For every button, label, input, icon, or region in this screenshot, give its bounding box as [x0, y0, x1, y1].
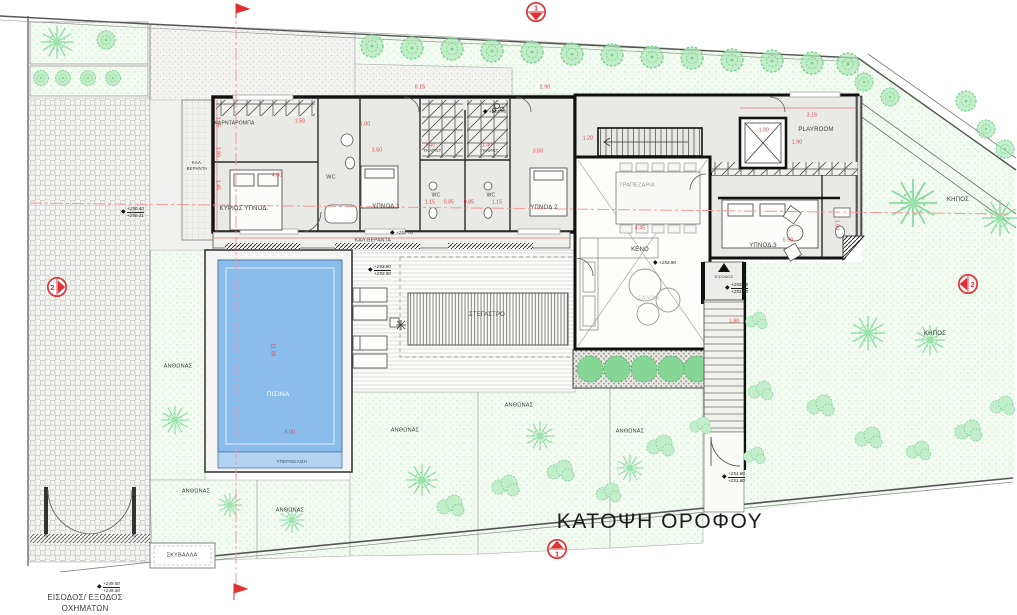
- dim-label: 1.15: [425, 201, 436, 206]
- drawing-title: ΚΑΤΟΨΗ ΟΡΟΦΟΥ: [557, 510, 763, 534]
- label-flowerbed-1: ΑΝΘΩΝΑΣ: [164, 364, 192, 370]
- dim-label: 4.00: [272, 174, 283, 179]
- label-master-bedroom: ΚΥΡΙΩΣ ΥΠΝΟΔ.: [220, 206, 269, 212]
- elevation-value: +257.70: [396, 230, 413, 236]
- dim-label: 4.45: [635, 227, 646, 232]
- wardrobe-hatch: [216, 100, 315, 116]
- label-trapezaria: ΤΡΑΠΕΖΑΡΙΑ: [619, 183, 655, 189]
- dim-label: 1.45: [215, 180, 220, 191]
- dim-label: 2.90: [540, 86, 551, 91]
- elevator: [740, 118, 786, 168]
- svg-text:1: 1: [555, 549, 559, 558]
- dim-label: 1.15: [492, 201, 503, 206]
- label-bedroom-3: ΥΠΝΟΔ.3: [749, 243, 777, 249]
- label-bedroom-2: ΥΠΝΟΔ.2: [530, 205, 558, 211]
- section-marker-top: 1: [525, 1, 547, 23]
- label-garnt-1: ΓΚΑΡΝΤ.: [424, 149, 443, 153]
- dim-label: 1.80: [759, 129, 770, 134]
- dim-label: 0.85: [464, 201, 475, 206]
- dim-label: 1.45: [215, 117, 220, 128]
- label-wc-1: WC: [432, 194, 441, 199]
- dim-label: 3.50: [533, 150, 544, 155]
- label-vehicle-entry-2: ΟΧΗΜΑΤΩΝ: [62, 605, 109, 613]
- dim-label: 6.00: [285, 431, 296, 436]
- dim-label: 3.50: [372, 149, 383, 154]
- label-pool: ΠΙΣΙΝΑ: [267, 392, 290, 399]
- dim-label: 1.50: [295, 120, 306, 125]
- elevation-value: +249.30: [103, 588, 120, 594]
- label-canopy: ΣΤΕΓΑΣΤΡΟ: [469, 312, 505, 318]
- label-saloni: ΣΑΛΟΝΙ: [638, 296, 660, 302]
- elevation-marker: ◆+250.40+250.31: [121, 206, 144, 218]
- elevation-value: +253.50: [374, 271, 391, 277]
- dim-label: 1.80: [729, 320, 740, 325]
- label-flowerbed-6: ΑΝΘΩΝΑΣ: [616, 429, 644, 435]
- dim-label: 1.80: [215, 147, 220, 158]
- elevation-marker: ◆+251.80+251.80: [722, 471, 745, 483]
- section-marker-left: 2: [46, 276, 68, 298]
- elevation-flag-icon: ◆: [725, 285, 730, 291]
- label-garnt-2: ΓΚΑΡΝΤ.: [481, 149, 500, 153]
- dim-label: 1.20: [583, 137, 594, 142]
- svg-text:2: 2: [50, 283, 54, 292]
- elevation-marker: ◆+257.75: [483, 109, 506, 115]
- svg-text:1: 1: [534, 4, 538, 13]
- label-playroom: PLAYROOM: [798, 127, 833, 133]
- dim-label: 11.00: [270, 343, 275, 356]
- elevation-flag-icon: ◆: [121, 209, 126, 215]
- label-bedroom-1: ΥΠΝΟΔ.1: [372, 204, 400, 210]
- elevation-marker: ◆+253.90+253.50: [368, 264, 391, 276]
- label-kal-veranta-left-1: ΚΑΛ.: [192, 161, 203, 165]
- elevation-flag-icon: ◆: [390, 230, 395, 236]
- elevation-flag-icon: ◆: [483, 109, 488, 115]
- dim-label: 1.50: [834, 220, 839, 231]
- planter-box: [573, 344, 710, 388]
- label-kal-veranta-left-2: ΒΕΡΑΝΤΑ: [187, 167, 208, 171]
- label-kal-veranta-bottom: ΚΑΛ.ΒΕΡΑΝΤΑ: [355, 239, 391, 244]
- label-garden-2: ΚΗΠΟΣ: [924, 331, 946, 337]
- elevation-value: +250.31: [127, 213, 144, 219]
- dim-label: 5.50: [783, 239, 794, 244]
- dim-label: 1.00: [360, 123, 371, 128]
- elevation-flag-icon: ◆: [653, 260, 658, 266]
- floor-plan-page: 1 1 2 2 ΚΑΤΟΨΗ ΟΡΟΦΟΥ ΓΚΑΡΝΤΑΡΟΜΠΑΚΥΡΙΩΣ…: [0, 0, 1017, 615]
- elevation-flag-icon: ◆: [97, 584, 102, 590]
- svg-text:2: 2: [971, 280, 975, 289]
- dim-label: 1.90: [792, 141, 803, 146]
- label-garden-1: ΚΗΠΟΣ: [947, 197, 969, 203]
- label-wc-2: WC: [487, 194, 496, 199]
- label-flowerbed-5: ΑΝΘΩΝΑΣ: [505, 403, 533, 409]
- label-flowerbed-2: ΑΝΘΩΝΑΣ: [182, 489, 210, 495]
- site-plan-drawing: [0, 0, 1017, 615]
- section-marker-right: 2: [957, 273, 979, 295]
- pool-water: [218, 260, 342, 452]
- label-garbage: ΣΚΥΒΑΛΛΑ: [167, 553, 198, 559]
- dim-label: 1.40: [482, 144, 493, 149]
- elevation-flag-icon: ◆: [368, 267, 373, 273]
- label-vehicle-entry-1: ΕΙΣΟΔΟΣ/ ΕΞΟΔΟΣ: [47, 594, 122, 602]
- dim-label: 3.15: [807, 114, 818, 119]
- dim-label: 0.85: [444, 201, 455, 206]
- elevation-flag-icon: ◆: [722, 474, 727, 480]
- elevation-value: +257.75: [489, 109, 506, 115]
- main-staircase: [598, 128, 702, 156]
- section-marker-bottom: 1: [546, 538, 568, 560]
- label-entrance-stair: ΕΙΣΟΔΟΣ: [715, 275, 734, 279]
- elevation-marker: ◆+253.90: [653, 260, 676, 266]
- label-wc-main: WC: [326, 175, 336, 181]
- dim-label: 1.40: [425, 144, 436, 149]
- elevation-marker: ◆+257.70: [390, 230, 413, 236]
- label-flowerbed-4: ΑΝΘΩΝΑΣ: [391, 428, 419, 434]
- elevation-value: +251.80: [728, 478, 745, 484]
- elevation-marker: ◆+249.50+249.30: [97, 581, 120, 593]
- dim-label: 0.15: [415, 86, 426, 91]
- elevation-value: +253.50: [731, 289, 748, 295]
- elevation-value: +253.90: [659, 260, 676, 266]
- parasol-icon: [396, 320, 406, 330]
- label-keno: ΚΕΝΟ: [631, 247, 649, 253]
- canopy-hatch: [408, 293, 568, 345]
- corner-hatch: [843, 236, 864, 260]
- elevation-marker: ◆+253.85+253.50: [725, 282, 748, 294]
- label-overflow: ΥΠΕΡΧΕΙΛΙΣΗ: [277, 460, 308, 464]
- label-flowerbed-3: ΑΝΘΩΝΑΣ: [276, 508, 304, 514]
